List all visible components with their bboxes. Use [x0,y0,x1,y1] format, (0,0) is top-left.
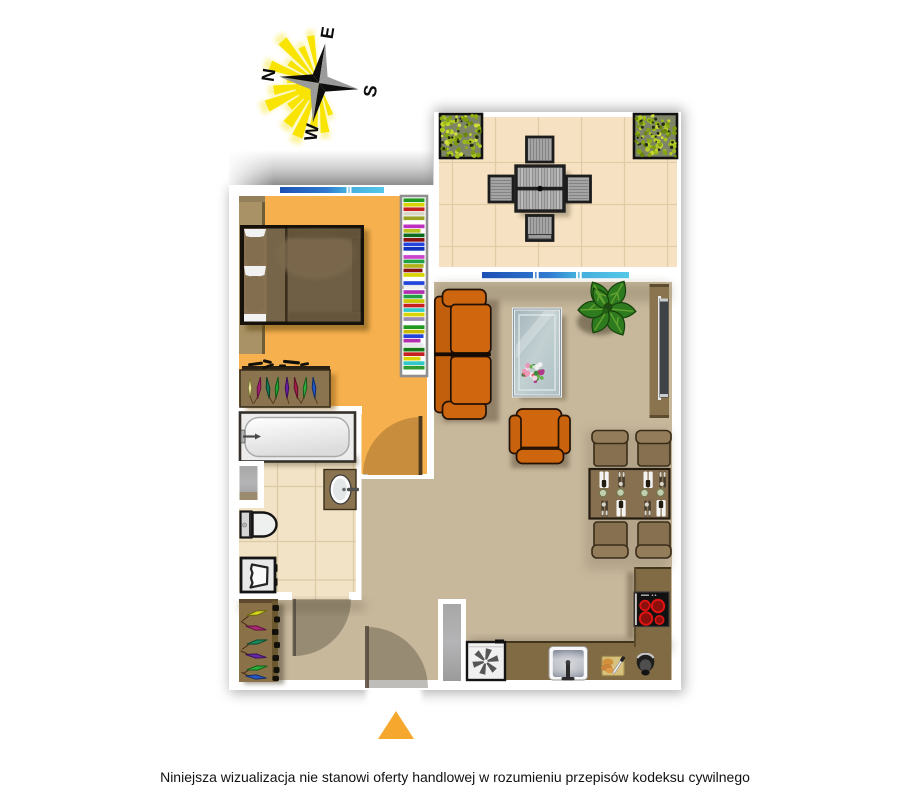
svg-text:Niniejsza wizualizacja nie sta: Niniejsza wizualizacja nie stanowi ofert… [160,769,750,785]
svg-text:S: S [360,84,382,99]
svg-text:W: W [300,123,322,143]
svg-text:E: E [317,25,339,40]
